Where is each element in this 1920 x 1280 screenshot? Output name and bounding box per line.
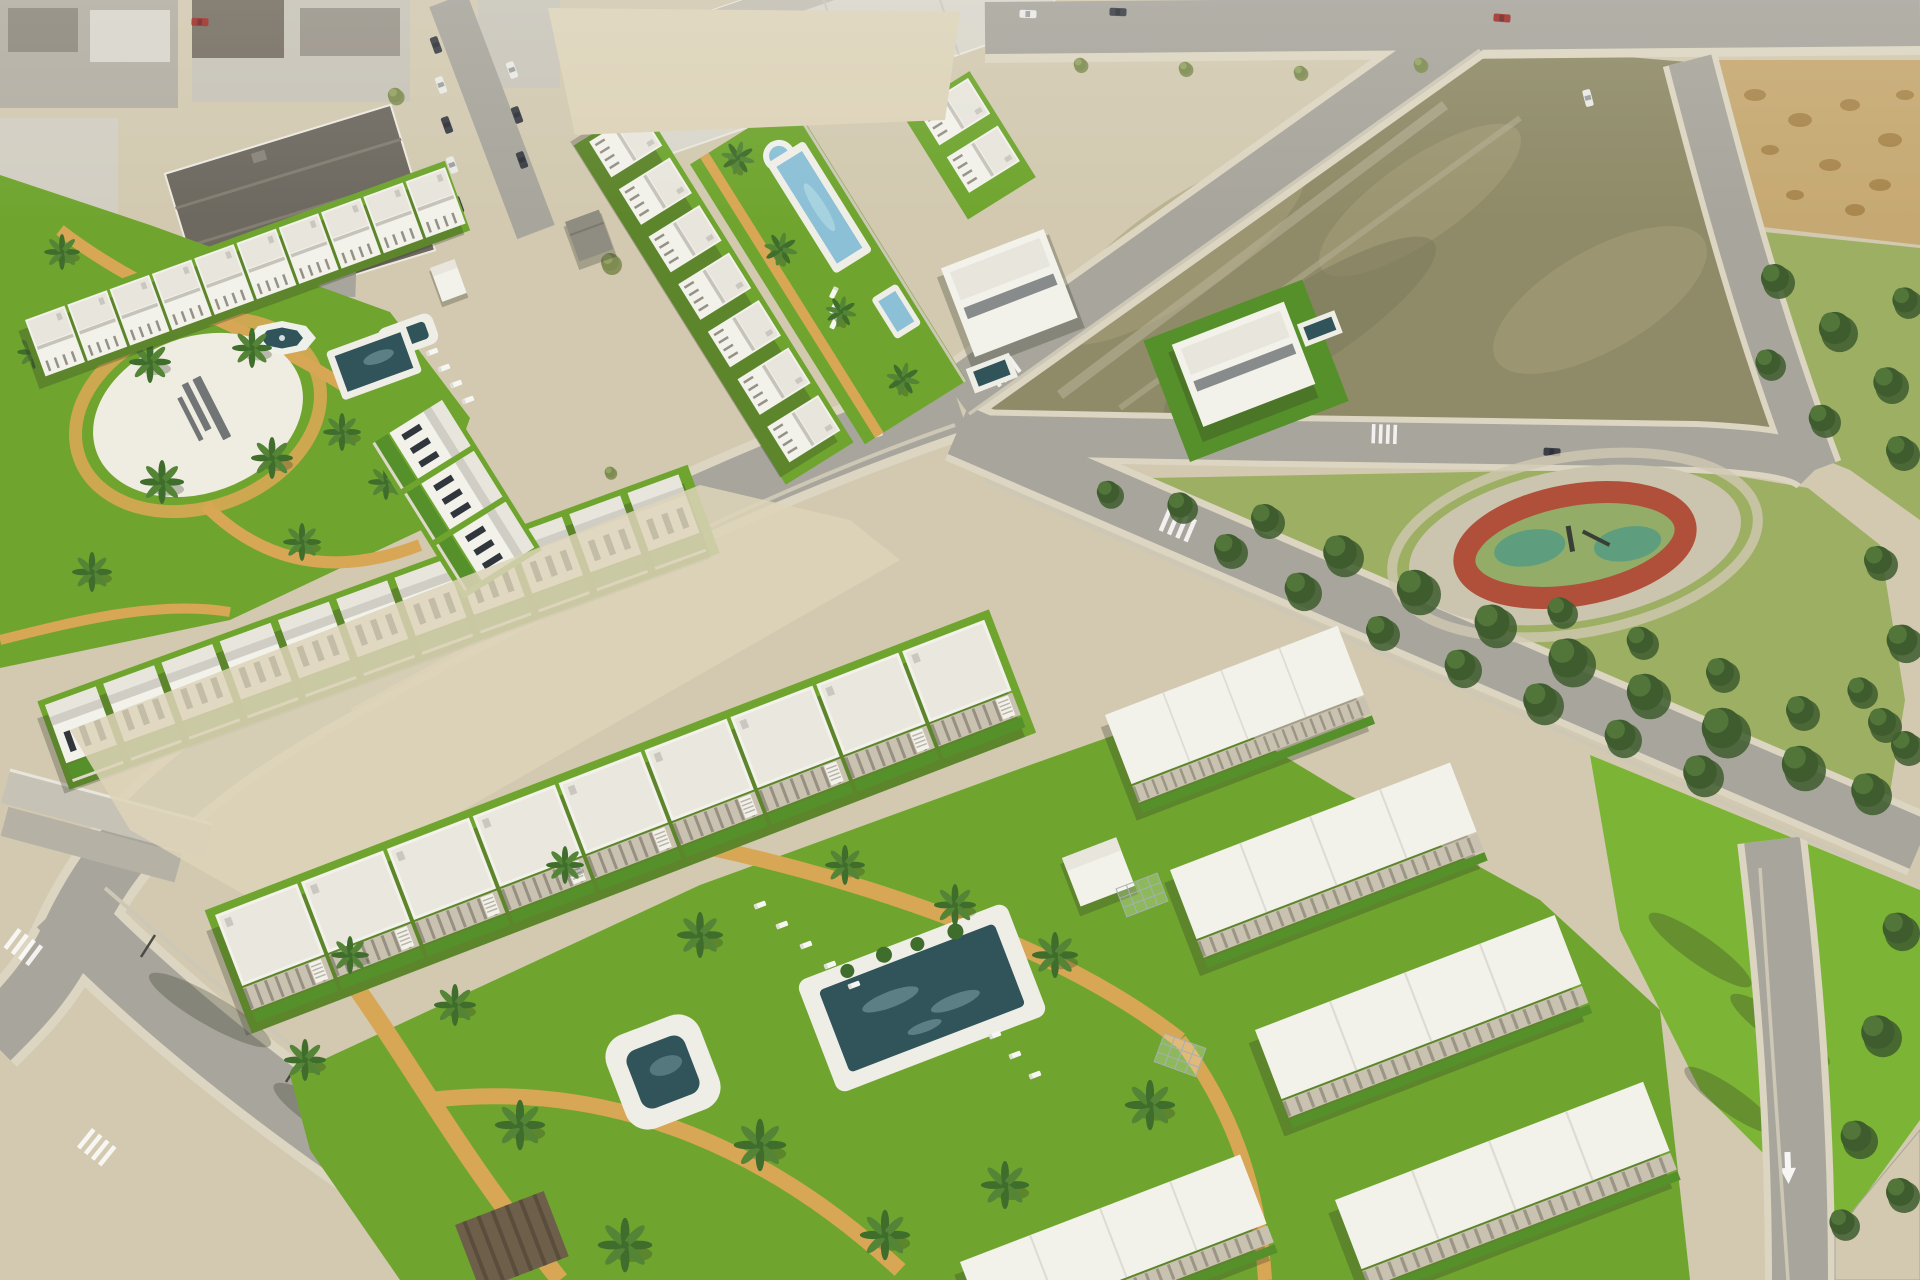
aerial-render: Aerial 3D render of a new-build Mediterr… bbox=[0, 0, 1920, 1280]
scene-canvas: Aerial 3D render of a new-build Mediterr… bbox=[0, 0, 1920, 1280]
haze-overlay bbox=[0, 0, 1920, 220]
corner-road bbox=[1772, 840, 1800, 1280]
